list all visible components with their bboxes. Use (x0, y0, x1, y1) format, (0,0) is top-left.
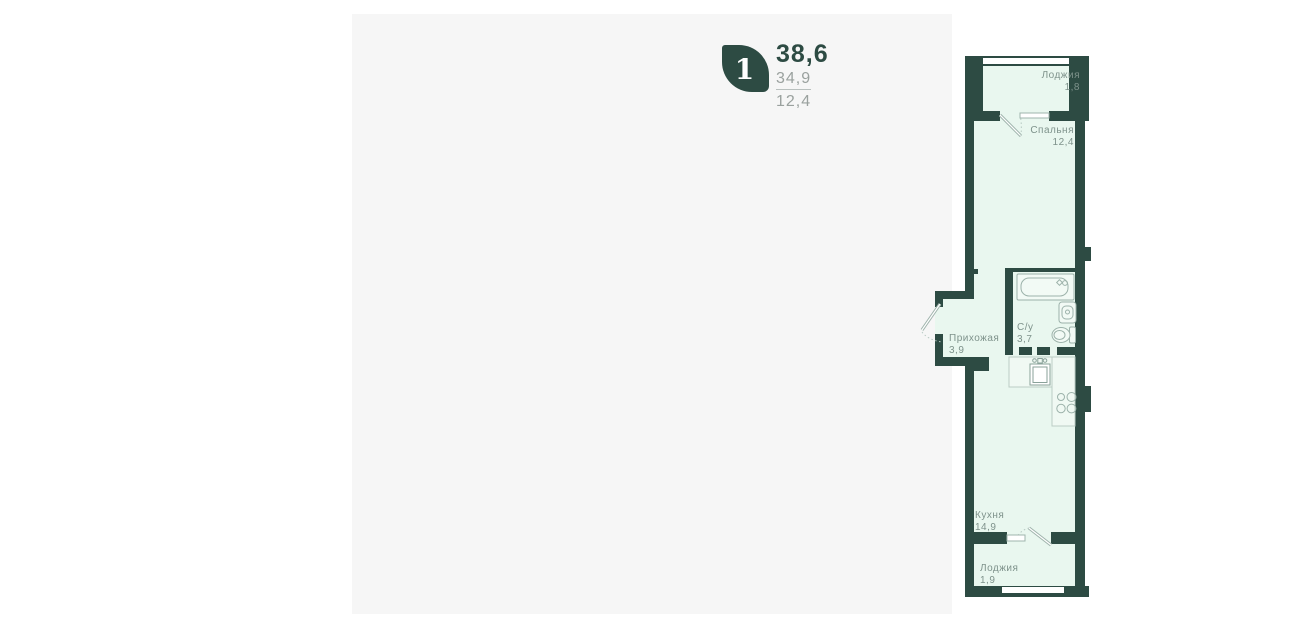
room-label-kitchen: Кухня 14,9 (975, 510, 1004, 533)
room-name: Прихожая (949, 333, 999, 345)
room-name: Лоджия (1042, 70, 1080, 82)
room-area: 1,8 (1065, 82, 1080, 94)
room-label-bedroom: Спальня 12,4 (1030, 125, 1074, 148)
toilet-symbol (1052, 327, 1076, 343)
loggia-top-door-swing (1000, 115, 1021, 136)
room-name: Лоджия (980, 563, 1018, 575)
plan-symbols (915, 54, 1111, 599)
bathtub-symbol (1017, 274, 1074, 300)
plan-card: 1 38,6 34,9 12,4 (352, 14, 952, 614)
room-name: Спальня (1030, 125, 1074, 137)
room-name: С/у (1017, 322, 1034, 334)
room-area: 14,9 (975, 522, 1004, 534)
kitchen-area-value: 12,4 (776, 93, 829, 111)
room-area: 12,4 (1053, 137, 1074, 149)
total-area-value: 38,6 (776, 41, 829, 68)
room-name: Кухня (975, 510, 1004, 522)
leaf-icon: 1 (735, 56, 754, 84)
window-kitchen-loggia (1007, 535, 1025, 541)
room-label-bathroom: С/у 3,7 (1017, 322, 1034, 345)
room-area: 1,9 (980, 575, 1018, 587)
window-bedroom-loggia (1020, 113, 1049, 118)
room-area: 3,7 (1017, 334, 1034, 346)
entry-door-swing (922, 304, 942, 342)
area-summary: 38,6 34,9 12,4 (776, 41, 829, 111)
unit-number-badge: 1 (722, 45, 769, 92)
living-area-value: 34,9 (776, 70, 811, 90)
washbasin-symbol (1059, 302, 1076, 323)
room-label-hallway: Прихожая 3,9 (949, 333, 999, 356)
room-label-loggia-bottom: Лоджия 1,9 (980, 563, 1018, 586)
floor-plan: Лоджия 1,8 Спальня 12,4 Прихожая 3,9 С/у… (915, 54, 1111, 599)
room-label-loggia-top: Лоджия 1,8 (1042, 70, 1080, 93)
room-area: 3,9 (949, 345, 999, 357)
